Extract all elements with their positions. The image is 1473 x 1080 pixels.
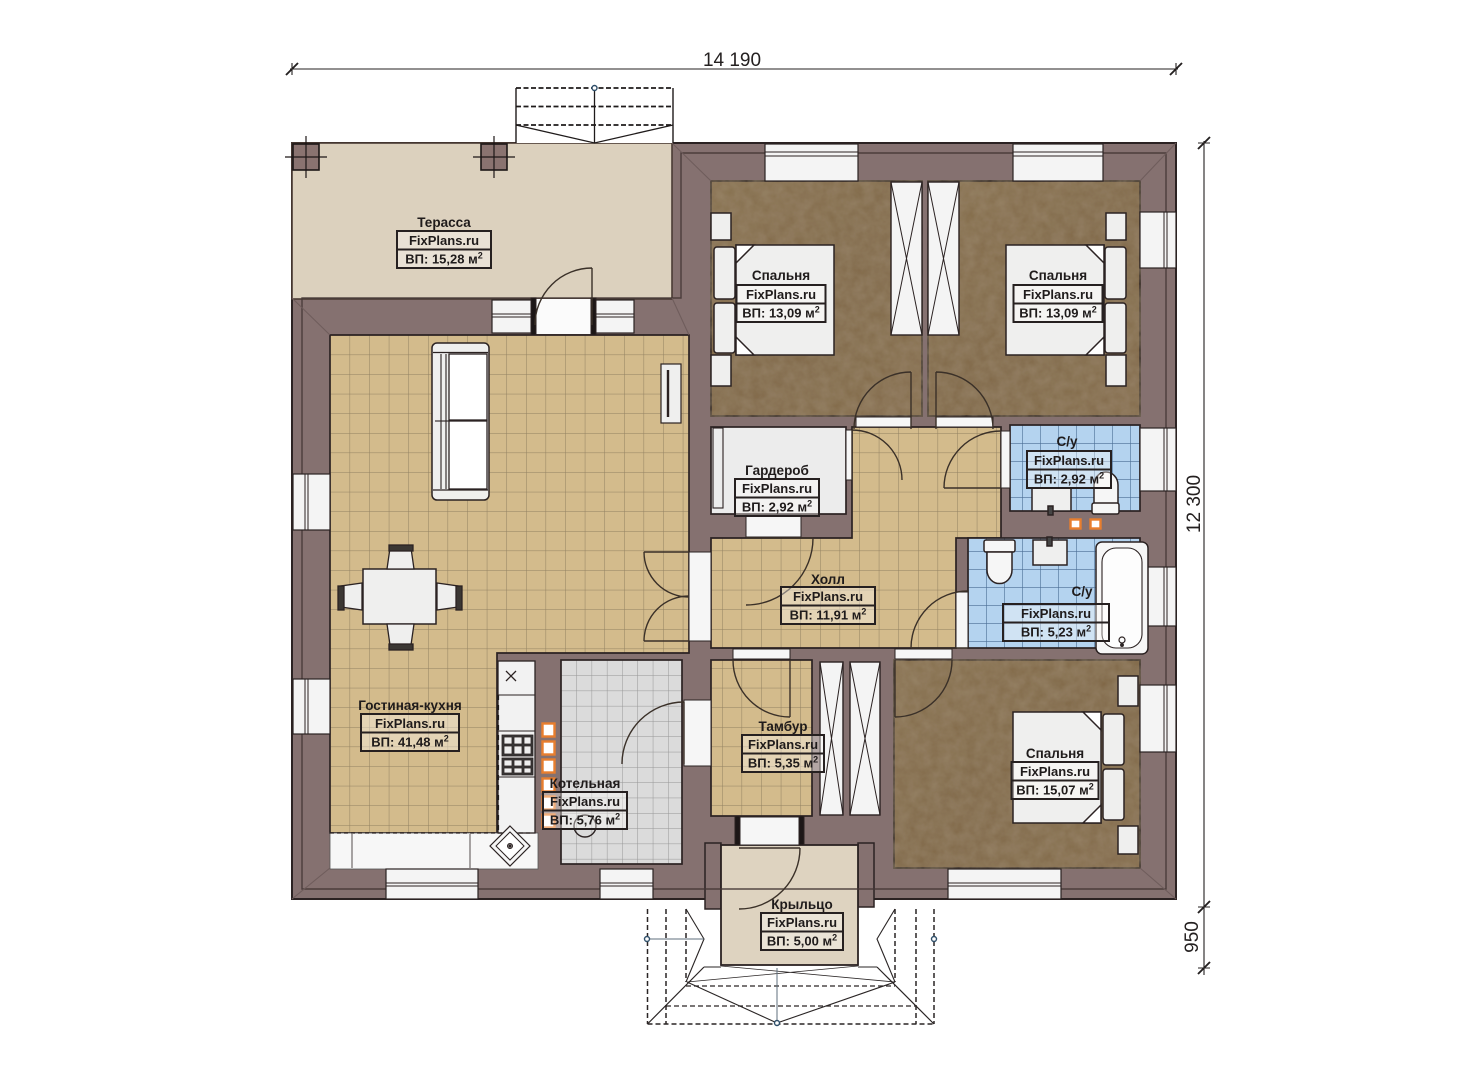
svg-text:С/у: С/у [1071,584,1093,599]
svg-text:Спальня: Спальня [1029,268,1087,283]
svg-text:12 300: 12 300 [1184,475,1205,533]
svg-text:FixPlans.ru: FixPlans.ru [748,737,818,752]
svg-text:FixPlans.ru: FixPlans.ru [375,716,445,731]
svg-text:FixPlans.ru: FixPlans.ru [1021,606,1091,621]
svg-text:FixPlans.ru: FixPlans.ru [767,915,837,930]
svg-text:ВП: 13,09 м2: ВП: 13,09 м2 [742,305,819,321]
svg-text:ВП: 13,09 м2: ВП: 13,09 м2 [1019,305,1096,321]
svg-text:Котельная: Котельная [550,776,621,791]
svg-text:ВП: 11,91 м2: ВП: 11,91 м2 [790,607,867,623]
svg-text:FixPlans.ru: FixPlans.ru [409,233,479,248]
svg-text:ВП: 2,92 м2: ВП: 2,92 м2 [1034,471,1104,487]
svg-text:Гостиная-кухня: Гостиная-кухня [358,698,461,713]
svg-text:Спальня: Спальня [1026,746,1084,761]
svg-text:14 190: 14 190 [703,50,761,71]
svg-text:Спальня: Спальня [752,268,810,283]
svg-text:Тамбур: Тамбур [759,719,808,734]
svg-text:FixPlans.ru: FixPlans.ru [746,287,816,302]
svg-text:Холл: Холл [811,572,845,587]
svg-text:FixPlans.ru: FixPlans.ru [742,481,812,496]
svg-text:950: 950 [1182,921,1203,953]
svg-text:ВП: 15,28 м2: ВП: 15,28 м2 [405,251,482,267]
svg-text:ВП: 5,00 м2: ВП: 5,00 м2 [767,933,837,949]
svg-text:Крыльцо: Крыльцо [771,897,832,912]
svg-text:Терасса: Терасса [417,215,471,230]
svg-text:ВП: 5,76 м2: ВП: 5,76 м2 [550,812,620,828]
svg-text:FixPlans.ru: FixPlans.ru [550,794,620,809]
svg-text:С/у: С/у [1056,434,1078,449]
svg-text:FixPlans.ru: FixPlans.ru [1020,764,1090,779]
svg-text:ВП: 2,92 м2: ВП: 2,92 м2 [742,499,812,515]
svg-text:ВП: 41,48 м2: ВП: 41,48 м2 [371,734,448,750]
svg-text:FixPlans.ru: FixPlans.ru [1034,453,1104,468]
svg-text:ВП: 5,23 м2: ВП: 5,23 м2 [1021,624,1091,640]
svg-text:FixPlans.ru: FixPlans.ru [793,589,863,604]
svg-text:FixPlans.ru: FixPlans.ru [1023,287,1093,302]
svg-text:ВП: 5,35 м2: ВП: 5,35 м2 [748,755,818,771]
svg-text:Гардероб: Гардероб [745,463,809,478]
svg-text:ВП: 15,07 м2: ВП: 15,07 м2 [1016,782,1093,798]
